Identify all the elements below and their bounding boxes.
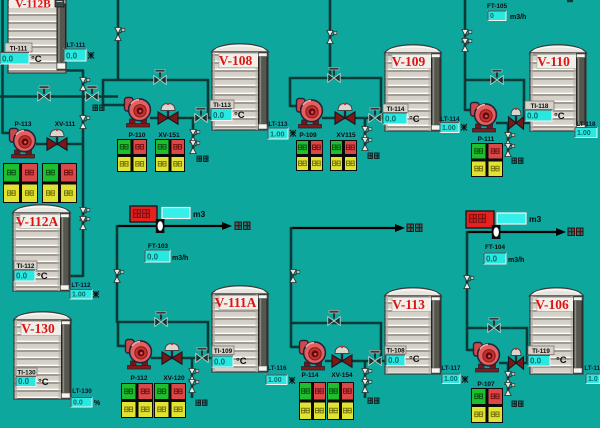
svg-text:LT-130: LT-130 — [72, 388, 92, 395]
svg-text:LT-117: LT-117 — [441, 365, 461, 372]
svg-text:%: % — [94, 400, 101, 407]
svg-text:°C: °C — [38, 377, 49, 388]
svg-text:0.0: 0.0 — [213, 111, 225, 120]
svg-text:°C: °C — [409, 114, 420, 125]
svg-text:°C: °C — [556, 355, 567, 366]
svg-text:P-113: P-113 — [15, 121, 32, 128]
svg-text:P-110: P-110 — [129, 132, 146, 139]
svg-text:P-114: P-114 — [302, 372, 319, 379]
svg-text:V-109: V-109 — [392, 54, 426, 69]
svg-text:°C: °C — [236, 356, 247, 367]
svg-text:TI-119: TI-119 — [532, 348, 550, 355]
svg-text:0.0: 0.0 — [388, 356, 400, 365]
svg-text:TI-108: TI-108 — [386, 348, 405, 355]
svg-text:m3/h: m3/h — [508, 257, 524, 264]
svg-text:0.0: 0.0 — [66, 52, 78, 61]
svg-text:1.0: 1.0 — [588, 376, 598, 383]
svg-text:V-106: V-106 — [535, 297, 569, 312]
svg-text:LT-112: LT-112 — [71, 282, 91, 289]
svg-text:LT-113: LT-113 — [268, 121, 288, 128]
svg-text:V-112B: V-112B — [15, 0, 51, 11]
svg-text:TI-118: TI-118 — [531, 103, 549, 110]
svg-text:V-113: V-113 — [392, 297, 425, 312]
svg-text:m3/h: m3/h — [172, 255, 188, 262]
svg-text:TI-111: TI-111 — [10, 46, 28, 53]
svg-text:LT-111: LT-111 — [67, 42, 86, 49]
svg-text:m3: m3 — [529, 214, 542, 224]
svg-text:°C: °C — [37, 271, 48, 282]
svg-text:FT-103: FT-103 — [148, 243, 168, 250]
svg-text:XV-111: XV-111 — [55, 121, 76, 128]
svg-text:XV-120: XV-120 — [163, 375, 185, 382]
svg-text:LT-119: LT-119 — [584, 365, 600, 372]
svg-text:V-112A: V-112A — [16, 214, 59, 229]
svg-text:1.00: 1.00 — [268, 377, 282, 384]
svg-text:°C: °C — [409, 354, 420, 365]
svg-text:0.0: 0.0 — [385, 115, 397, 124]
svg-text:m3/h: m3/h — [510, 14, 526, 21]
svg-text:P-111: P-111 — [478, 136, 495, 143]
svg-text:P-109: P-109 — [299, 132, 317, 139]
svg-text:TI-112: TI-112 — [17, 263, 35, 270]
svg-text:m3: m3 — [193, 209, 206, 219]
svg-text:0: 0 — [490, 13, 494, 20]
svg-text:TI-113: TI-113 — [213, 102, 231, 109]
svg-text:0.0: 0.0 — [18, 377, 30, 386]
svg-text:XV115: XV115 — [336, 132, 356, 139]
svg-text:TI-130: TI-130 — [17, 370, 36, 377]
svg-text:V-111A: V-111A — [215, 295, 257, 310]
svg-text:V-110: V-110 — [537, 54, 570, 69]
svg-text:FT-104: FT-104 — [485, 244, 505, 251]
svg-text:1.00: 1.00 — [444, 376, 458, 383]
svg-text:LT-116: LT-116 — [267, 365, 287, 372]
svg-text:TI-109: TI-109 — [214, 348, 233, 355]
svg-text:0.0: 0.0 — [2, 55, 14, 64]
svg-text:V-108: V-108 — [219, 53, 253, 68]
svg-text:FT-105: FT-105 — [487, 3, 507, 10]
svg-text:P-107: P-107 — [477, 381, 495, 388]
svg-text:XV-151: XV-151 — [158, 132, 180, 139]
svg-text:1.00: 1.00 — [270, 130, 285, 139]
svg-text:1.00: 1.00 — [577, 130, 591, 137]
svg-text:0.0: 0.0 — [16, 272, 28, 281]
svg-text:LT-118: LT-118 — [576, 121, 596, 128]
svg-text:1.00: 1.00 — [442, 125, 456, 132]
svg-text:0.0: 0.0 — [527, 112, 539, 121]
svg-text:1.00: 1.00 — [72, 292, 86, 299]
svg-text:P-112: P-112 — [131, 375, 148, 382]
svg-text:XV-154: XV-154 — [331, 372, 353, 379]
svg-text:0.0: 0.0 — [147, 253, 159, 262]
svg-text:0.0: 0.0 — [486, 255, 498, 264]
svg-text:°C: °C — [31, 54, 42, 65]
svg-text:LT-114: LT-114 — [440, 116, 460, 123]
svg-text:0.0: 0.0 — [73, 400, 83, 407]
svg-text:V-130: V-130 — [21, 321, 55, 336]
svg-text:°C: °C — [234, 110, 245, 121]
svg-text:0.0: 0.0 — [530, 357, 542, 366]
svg-text:°C: °C — [554, 111, 565, 122]
svg-text:TI-114: TI-114 — [387, 106, 405, 113]
svg-text:0.0: 0.0 — [214, 358, 226, 367]
